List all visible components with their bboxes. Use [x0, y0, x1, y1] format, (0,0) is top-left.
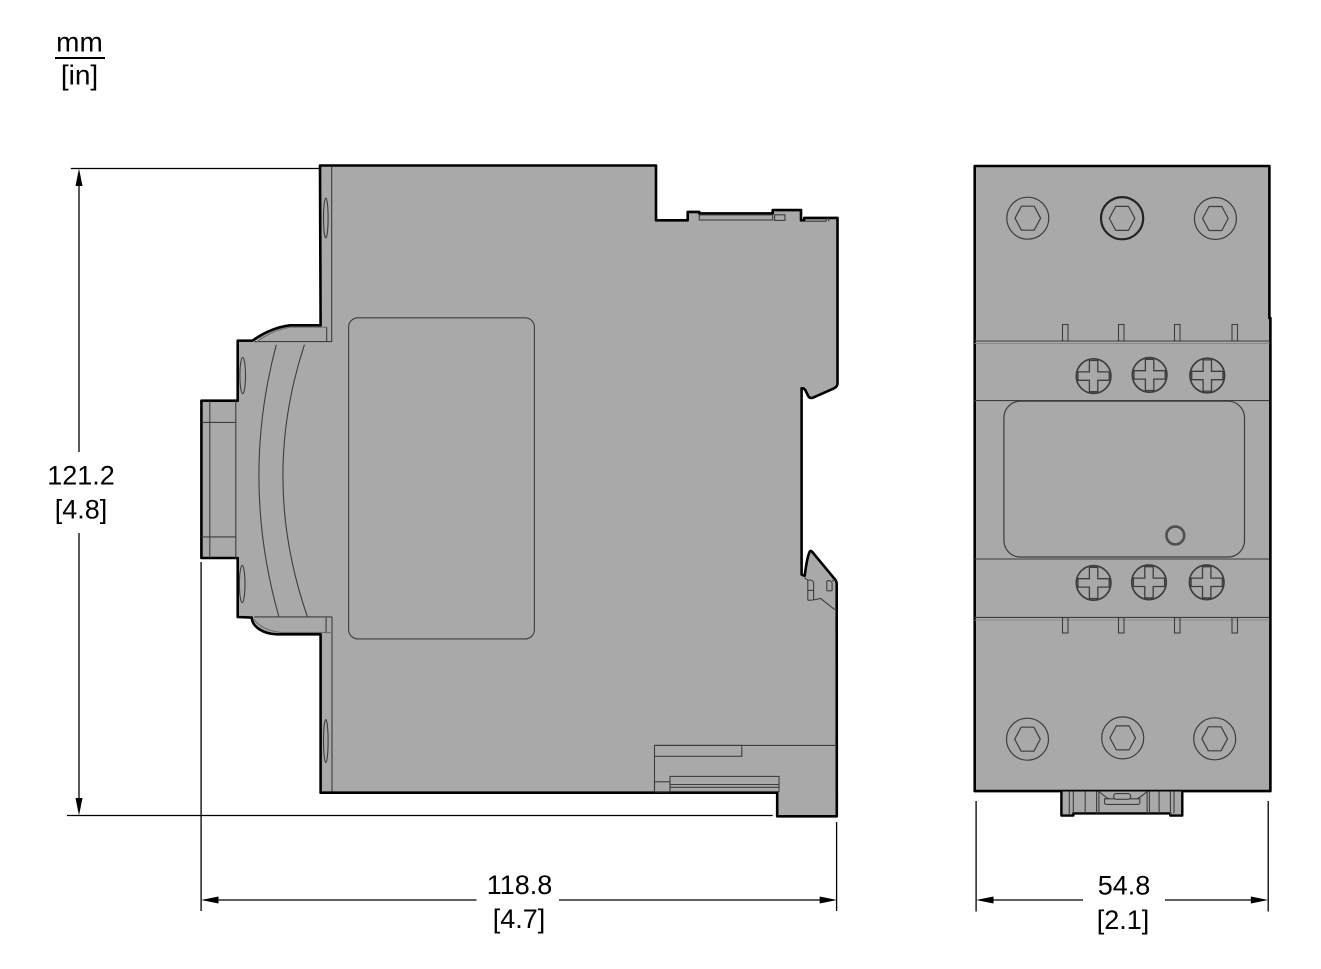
svg-text:54.8: 54.8 — [1098, 871, 1151, 901]
svg-text:121.2: 121.2 — [47, 461, 115, 491]
svg-text:mm: mm — [56, 27, 103, 58]
svg-text:[in]: [in] — [61, 60, 98, 91]
svg-text:118.8: 118.8 — [487, 870, 553, 900]
svg-text:[4.8]: [4.8] — [55, 495, 108, 525]
svg-text:[4.7]: [4.7] — [493, 904, 546, 934]
svg-text:[2.1]: [2.1] — [1097, 905, 1150, 935]
